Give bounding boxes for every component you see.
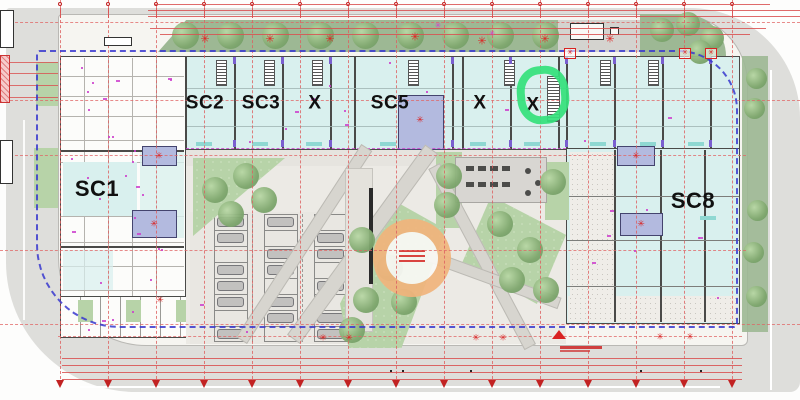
hydrant-icon: ✳ bbox=[200, 35, 209, 46]
flower-icon: ✳ bbox=[472, 334, 480, 343]
road-lane-stripe bbox=[80, 386, 720, 388]
grid-arrow bbox=[632, 380, 640, 388]
grid-line-horizontal bbox=[0, 22, 800, 23]
neighbour-block bbox=[0, 10, 14, 48]
fixture-dot bbox=[72, 231, 76, 233]
grid-bubble bbox=[58, 2, 62, 6]
tree-icon bbox=[746, 68, 767, 89]
grid-bubble bbox=[106, 2, 110, 6]
unit-label-x4: X bbox=[308, 94, 321, 113]
road-survey-line bbox=[160, 34, 750, 35]
road-survey-line bbox=[148, 10, 800, 11]
fixture-dot bbox=[125, 175, 127, 177]
unit-label-sc5: SC5 bbox=[371, 94, 409, 113]
magenta-symbol-icon: ✳ bbox=[489, 30, 496, 38]
fixture-dot bbox=[246, 331, 248, 333]
fixture-dot bbox=[81, 67, 83, 69]
dim-dot bbox=[640, 370, 642, 372]
tree-icon bbox=[352, 22, 379, 49]
fixture-dot bbox=[103, 98, 107, 100]
fixture-dot bbox=[112, 319, 114, 321]
fixture-dot bbox=[295, 111, 299, 113]
tree-icon bbox=[746, 286, 767, 307]
fan-symbol-icon: ✳ bbox=[632, 152, 640, 161]
grid-arrow bbox=[152, 380, 160, 388]
road-survey-line bbox=[62, 358, 742, 359]
fixture-dot bbox=[592, 262, 596, 264]
hydrant-icon: ✳ bbox=[708, 50, 714, 57]
fixture-dot bbox=[344, 110, 346, 112]
entrance-triangle-icon bbox=[552, 330, 566, 339]
tree-icon bbox=[172, 22, 199, 49]
fixture-dot bbox=[329, 85, 331, 87]
grid-tick bbox=[60, 8, 61, 18]
fixture-dot bbox=[132, 161, 134, 163]
fixture-dot bbox=[249, 141, 251, 143]
hydrant-icon: ✳ bbox=[567, 50, 573, 57]
neighbour-block bbox=[0, 140, 13, 184]
grid-arrow bbox=[56, 380, 64, 388]
flower-icon: ✳ bbox=[499, 334, 507, 343]
grid-arrow bbox=[584, 380, 592, 388]
road-survey-line bbox=[150, 28, 766, 29]
fan-symbol-icon: ✳ bbox=[156, 296, 164, 305]
fixture-dot bbox=[345, 124, 349, 126]
red-caption-line bbox=[560, 350, 590, 352]
grid-arrow bbox=[536, 380, 544, 388]
grid-arrow bbox=[488, 380, 496, 388]
unit-label-sc2: SC2 bbox=[186, 94, 224, 113]
fixture-dot bbox=[668, 117, 672, 119]
fan-symbol-icon: ✳ bbox=[155, 152, 163, 161]
road-survey-line bbox=[62, 379, 742, 380]
hydrant-icon: ✳ bbox=[605, 35, 614, 46]
tree-icon bbox=[743, 242, 764, 263]
fixture-dot bbox=[389, 62, 391, 64]
fan-symbol-icon: ✳ bbox=[416, 116, 424, 125]
grid-arrow bbox=[296, 380, 304, 388]
fixture-dot bbox=[150, 279, 152, 281]
road-lane-stripe bbox=[770, 70, 772, 390]
fan-symbol-icon: ✳ bbox=[637, 220, 645, 229]
fixture-dot bbox=[136, 186, 140, 188]
grid-arrow bbox=[728, 380, 736, 388]
fixture-dot bbox=[102, 320, 106, 322]
fixture-dot bbox=[116, 80, 120, 82]
magenta-symbol-icon: ✳ bbox=[435, 22, 442, 30]
tree-icon bbox=[747, 200, 768, 221]
fixture-dot bbox=[607, 235, 611, 237]
road-lane-stripe bbox=[23, 120, 25, 320]
flower-icon: ✳ bbox=[319, 334, 327, 343]
tree-icon bbox=[217, 22, 244, 49]
grid-line-horizontal bbox=[58, 336, 742, 337]
fixture-dot bbox=[285, 128, 287, 130]
flower-icon: ✳ bbox=[345, 334, 353, 343]
road-survey-line bbox=[148, 16, 800, 17]
red-caption-line bbox=[560, 346, 602, 349]
hydrant-icon: ✳ bbox=[477, 37, 486, 48]
fixture-dot bbox=[646, 209, 648, 211]
fan-symbol-icon: ✳ bbox=[150, 220, 158, 229]
fixture-dot bbox=[88, 329, 90, 331]
flower-icon: ✳ bbox=[686, 333, 694, 342]
hydrant-icon: ✳ bbox=[265, 35, 274, 46]
grid-arrow bbox=[200, 380, 208, 388]
fixture-dot bbox=[137, 233, 141, 235]
dim-dot bbox=[390, 370, 392, 372]
fixture-dot bbox=[161, 249, 163, 251]
grid-arrow bbox=[680, 380, 688, 388]
fixture-dot bbox=[71, 158, 73, 160]
grid-arrow bbox=[104, 380, 112, 388]
grid-arrow bbox=[440, 380, 448, 388]
tree-icon bbox=[442, 22, 469, 49]
grid-tick bbox=[108, 8, 109, 18]
hydrant-icon: ✳ bbox=[682, 50, 688, 57]
road-survey-line bbox=[62, 365, 742, 366]
unit-label-sc1: SC1 bbox=[75, 178, 119, 200]
unit-label-x6: X bbox=[473, 94, 486, 113]
fixture-dot bbox=[634, 250, 636, 252]
fixture-dot bbox=[142, 194, 144, 196]
fixture-dot bbox=[584, 140, 586, 142]
fixture-dot bbox=[88, 109, 90, 111]
fixture-dot bbox=[168, 78, 172, 80]
fixture-dot bbox=[717, 297, 719, 299]
hydrant-icon: ✳ bbox=[410, 33, 419, 44]
fixture-dot bbox=[108, 136, 110, 138]
dim-dot bbox=[470, 370, 472, 372]
fixture-dot bbox=[92, 82, 94, 84]
dim-dot bbox=[402, 370, 404, 372]
fixture-dot bbox=[134, 217, 136, 219]
dim-box bbox=[104, 37, 132, 46]
grid-arrow bbox=[392, 380, 400, 388]
fixture-dot bbox=[132, 311, 134, 313]
fixture-dot bbox=[112, 136, 114, 138]
fixture-dot bbox=[158, 248, 160, 250]
fixture-dot bbox=[87, 91, 89, 93]
grid-arrow bbox=[248, 380, 256, 388]
road-survey-line bbox=[155, 4, 770, 5]
hydrant-icon: ✳ bbox=[325, 35, 334, 46]
fixture-dot bbox=[200, 304, 204, 306]
site-plan-canvas: ✳✳✳✳✳✳✳✳✳✳✳✳✳✳✳✳✳✳✳✳✳✳✳✳SC1SC2SC3XSC5XXS… bbox=[0, 0, 800, 400]
fixture-dot bbox=[100, 282, 102, 284]
flower-icon: ✳ bbox=[656, 333, 664, 342]
neighbour-block-red bbox=[0, 55, 10, 103]
unit-label-sc8: SC8 bbox=[671, 190, 715, 212]
grid-arrow bbox=[344, 380, 352, 388]
road-survey-line bbox=[62, 372, 742, 373]
unit-label-sc3: SC3 bbox=[242, 94, 280, 113]
fixture-dot bbox=[426, 91, 428, 93]
fixture-dot bbox=[505, 109, 509, 111]
fixture-dot bbox=[698, 237, 700, 239]
fixture-dot bbox=[134, 150, 136, 152]
dim-dot bbox=[700, 370, 702, 372]
hydrant-icon: ✳ bbox=[540, 35, 549, 46]
fixture-dot bbox=[610, 210, 614, 212]
equipment-box bbox=[570, 23, 604, 40]
